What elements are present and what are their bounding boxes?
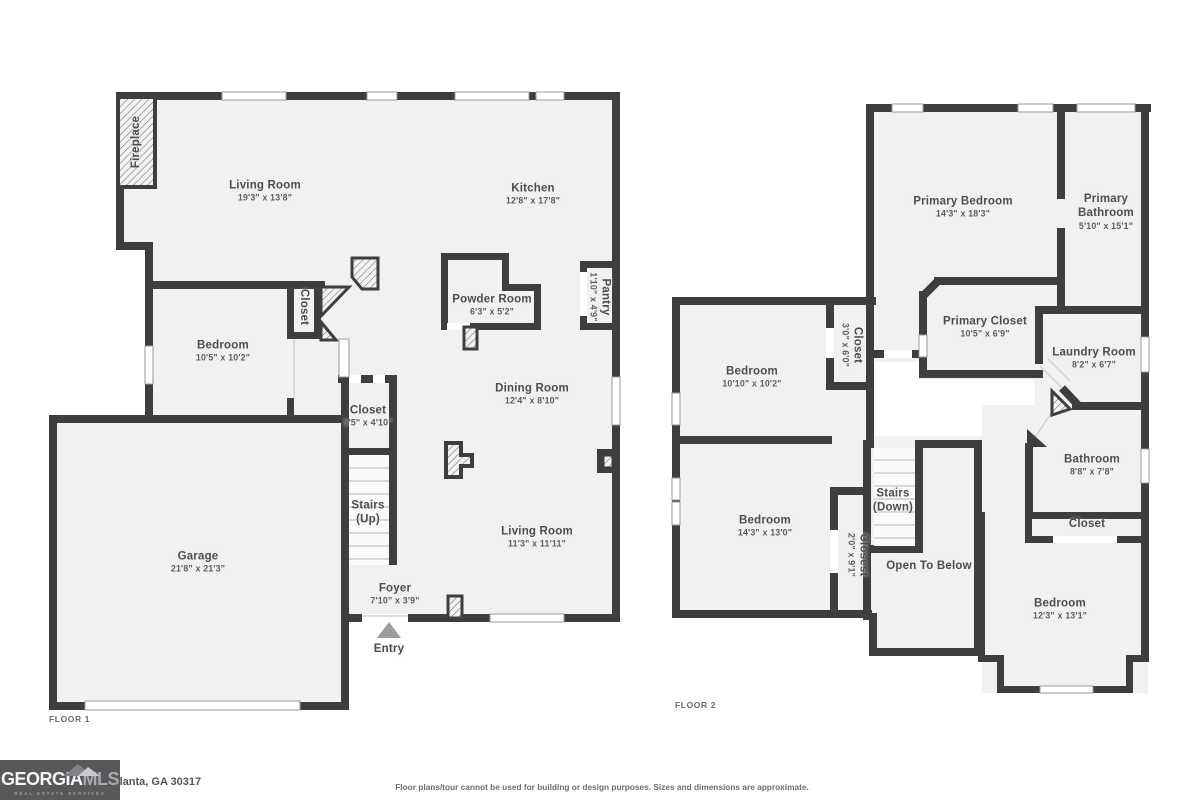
disclaimer-text: Floor plans/tour cannot be used for buil…: [395, 782, 809, 792]
room-label-pantry: Pantry 1'10" x 4'9": [587, 272, 612, 321]
room-label-living-room-2: Living Room 11'3" x 11'11": [501, 524, 573, 549]
room-label-laundry-room: Laundry Room 8'2" x 6'7": [1052, 345, 1136, 370]
room-label-stairs-up: Stairs (Up): [351, 499, 384, 528]
floor2-tag: FLOOR 2: [675, 700, 716, 710]
mountain-peak-icon: [62, 763, 102, 776]
room-label-primary-bathroom: Primary Bathroom 5'10" x 15'1": [1068, 192, 1144, 232]
room-label-dining-room: Dining Room 12'4" x 8'10": [495, 381, 569, 406]
door-leaf: [448, 596, 462, 618]
room-label-kitchen: Kitchen 12'8" x 17'8": [506, 181, 560, 206]
property-address: Atlanta, GA 30317: [108, 776, 201, 788]
room-label-bedroom-1: Bedroom 10'10" x 10'2": [722, 364, 781, 389]
entry-label: Entry: [374, 642, 404, 656]
room-label-garage: Garage 21'8" x 21'3": [171, 549, 225, 574]
floor-plan-canvas: [0, 0, 1200, 800]
room-label-living-room: Living Room 19'3" x 13'8": [229, 178, 301, 203]
floor-plan-page: Fireplace Living Room 19'3" x 13'8" Kitc…: [0, 0, 1200, 800]
room-label-closet-hall-2: Closet 3'0" x 6'0": [839, 323, 864, 367]
room-label-closest: Closest 2'0" x 9'1": [845, 533, 870, 577]
wall-niche: [603, 455, 613, 468]
entry-arrow-icon: [377, 622, 401, 638]
room-label-closet-2: Closet: [1069, 517, 1105, 531]
door-leaf: [464, 327, 477, 349]
room-label-bathroom: Bathroom 8'8" x 7'8": [1064, 452, 1120, 477]
room-label-stairs-down: Stairs (Down): [873, 487, 913, 516]
room-label-bedroom-2: Bedroom 14'3" x 13'0": [738, 513, 792, 538]
room-label-open-to-below: Open To Below: [886, 559, 971, 573]
room-label-bedroom: Bedroom 10'5" x 10'2": [196, 338, 250, 363]
room-label-closet-hall: Closet: [297, 289, 311, 325]
room-label-primary-closet: Primary Closet 10'5" x 6'9": [943, 314, 1027, 339]
room-label-foyer: Foyer 7'10" x 3'9": [370, 581, 419, 606]
room-label-powder-room: Powder Room 6'3" x 5'2": [452, 292, 532, 317]
room-label-primary-bedroom: Primary Bedroom 14'3" x 18'3": [913, 194, 1013, 219]
room-label-fireplace: Fireplace: [129, 116, 143, 168]
georgia-mls-logo: GEORGIAMLS REAL ESTATE SERVICES: [0, 760, 120, 800]
room-label-bedroom-3: Bedroom 12'3" x 13'1": [1033, 596, 1087, 621]
room-label-closet-stairs: Closet 3'5" x 4'10": [343, 403, 392, 428]
garage-door: [85, 701, 300, 710]
logo-subtitle: REAL ESTATE SERVICES: [14, 791, 106, 796]
floor1-tag: FLOOR 1: [49, 714, 90, 724]
